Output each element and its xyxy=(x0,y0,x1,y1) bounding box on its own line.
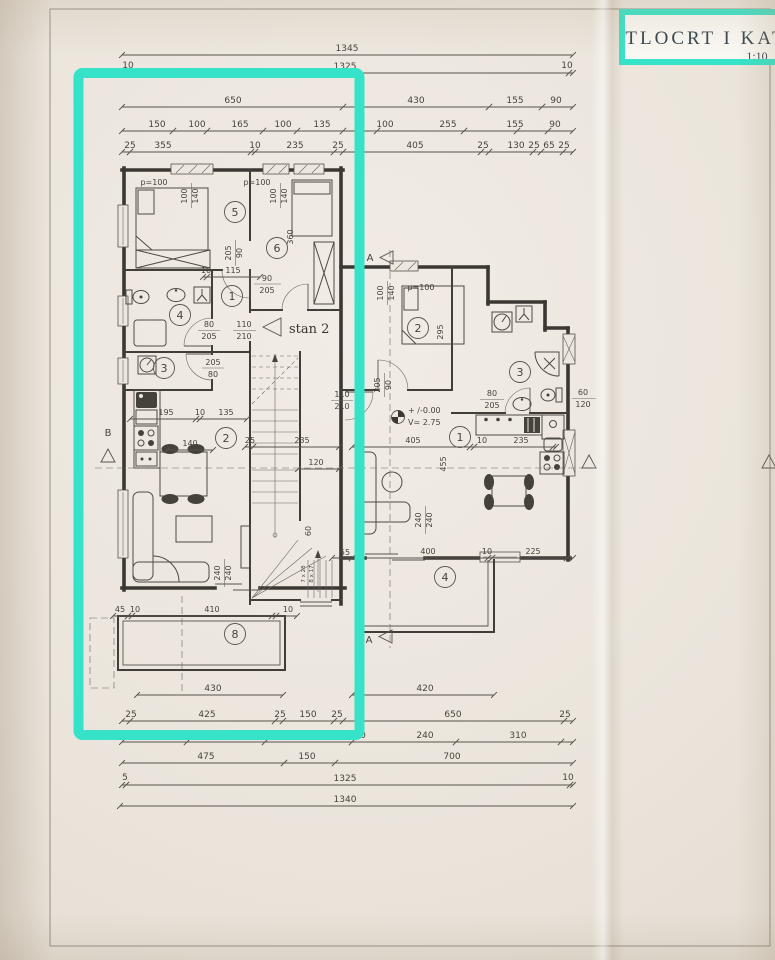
staircase: 7 x 28 8 x 17 xyxy=(252,354,332,598)
dim-label: 25 xyxy=(477,141,488,151)
dim-label: 1345 xyxy=(336,44,359,54)
washing-machine-icon xyxy=(492,312,512,332)
dim-label: 210 xyxy=(334,402,349,411)
dim-label: 165 xyxy=(231,120,248,130)
dim-label: 90 xyxy=(235,248,244,258)
room-label: 3 xyxy=(154,358,175,379)
dim-label: 210 xyxy=(236,332,251,341)
dim-label: 110 xyxy=(236,320,251,329)
room-label: 3 xyxy=(510,362,531,383)
dim-label: 25 xyxy=(558,141,569,151)
dim-label: 25 xyxy=(125,710,136,720)
dim-label: 150 xyxy=(299,710,316,720)
entry-door-icon xyxy=(263,318,281,336)
sofa-icon xyxy=(133,492,209,582)
dim-label: 45 xyxy=(115,605,125,614)
level-datum-label: + /-0.00 xyxy=(408,406,441,415)
door-arc-icon xyxy=(378,360,408,390)
dim-label: 240 xyxy=(414,512,423,527)
dim-label: p=100 xyxy=(407,283,434,292)
dim-label: 100 xyxy=(274,120,291,130)
toilet-icon xyxy=(126,290,149,304)
dim-label: 235 xyxy=(294,436,309,445)
window-icon xyxy=(263,164,289,174)
dim-label: 80 xyxy=(487,389,497,398)
room-number: 6 xyxy=(274,242,281,255)
window-icon xyxy=(294,164,324,174)
dining-table-icon xyxy=(484,474,534,510)
apartment-label: stan 2 xyxy=(289,322,329,337)
windows xyxy=(118,164,575,590)
dim-label: 140 xyxy=(280,188,289,203)
dim-label: 225 xyxy=(525,547,540,556)
room-number: 3 xyxy=(517,366,524,379)
dim-label: 140 xyxy=(387,285,396,300)
shower-tub-icon xyxy=(134,320,166,346)
stair-direction-arrow-icon xyxy=(315,550,321,558)
dim-label: 430 xyxy=(204,684,221,694)
dim-label: 5 xyxy=(122,773,128,783)
dim-label: 10 xyxy=(130,605,140,614)
dim-label: 25 xyxy=(528,141,539,151)
sink-icon xyxy=(167,289,185,302)
dim-label: 10 xyxy=(482,547,492,556)
vent-icon xyxy=(516,306,532,322)
dim-label: 400 xyxy=(420,547,435,556)
dim-label: 420 xyxy=(416,684,433,694)
dim-label: 60 xyxy=(304,526,313,536)
dim-label: 90 xyxy=(549,120,561,130)
tv-cabinet-icon xyxy=(241,526,250,568)
dim-label: 100 xyxy=(188,120,205,130)
dim-label: 65 xyxy=(543,141,554,151)
furniture-right-apartment xyxy=(356,286,564,534)
wardrobe-icon xyxy=(136,250,210,268)
dim-label: 405 xyxy=(405,436,420,445)
sliding-door-icon xyxy=(215,584,260,590)
dim-label: 310 xyxy=(509,731,526,741)
drawing-title: TLOCRT I KAT xyxy=(625,28,775,49)
room-label: 2 xyxy=(408,318,429,339)
dim-label: 90 xyxy=(550,96,562,106)
room-number: 3 xyxy=(161,362,168,375)
dim-label: 650 xyxy=(224,96,241,106)
section-marker-triangle-icon xyxy=(582,455,596,468)
dim-label: 120 xyxy=(308,458,323,467)
room-number: 1 xyxy=(457,431,464,444)
dim-label: 10 xyxy=(195,408,205,417)
dim-label: 130 xyxy=(507,141,524,151)
walls-right-apartment xyxy=(341,267,570,560)
window-icon xyxy=(390,261,418,271)
dim-label: 205 xyxy=(259,286,274,295)
bed-icon xyxy=(402,286,464,344)
room-number: 4 xyxy=(177,309,184,322)
dim-label: 10 xyxy=(477,436,487,445)
dim-label: 10 xyxy=(561,61,573,71)
dim-label: 25 xyxy=(331,710,342,720)
dim-label: 25 xyxy=(559,710,570,720)
dim-label: 135 xyxy=(313,120,330,130)
dim-label: 25 xyxy=(124,141,135,151)
room-number: 1 xyxy=(229,290,236,303)
dim-label: 100 xyxy=(376,285,385,300)
room-number: 8 xyxy=(232,628,239,641)
dim-label: 235 xyxy=(286,141,303,151)
floor-plan-photo: 1345 10 1325 10 650 430 155 90 150 100 1… xyxy=(0,0,775,960)
highlight-annotations: 1:10 TLOCRT I KAT xyxy=(79,12,775,735)
room-label: 4 xyxy=(435,567,456,588)
dim-label: 90 xyxy=(384,380,393,390)
dim-label: 455 xyxy=(439,456,448,471)
sliding-door-icon xyxy=(365,554,425,560)
dim-label: 155 xyxy=(506,96,523,106)
dim-label: 360 xyxy=(286,229,295,244)
dim-label: 140 xyxy=(191,188,200,203)
room-height-label: V= 2.75 xyxy=(408,418,441,427)
dim-label: 120 xyxy=(575,400,590,409)
dim-label: 425 xyxy=(198,710,215,720)
washing-machine-icon xyxy=(138,356,156,374)
door-arc-icon xyxy=(282,284,308,310)
dim-label: 150 xyxy=(298,752,315,762)
dim-label: 115 xyxy=(225,266,240,275)
dim-label: 100 xyxy=(180,188,189,203)
section-marker-b-left: B xyxy=(105,428,112,439)
dim-label: 475 xyxy=(197,752,214,762)
room-label: 5 xyxy=(225,202,246,223)
corner-shower-icon xyxy=(535,352,559,376)
terrace-right xyxy=(358,560,494,632)
walls-left-apartment xyxy=(122,168,345,604)
vent-icon xyxy=(194,287,210,303)
section-marker-a-bottom: A xyxy=(366,635,373,646)
furniture-left-apartment xyxy=(126,180,334,582)
dim-label: 195 xyxy=(158,408,173,417)
dim-label: 255 xyxy=(439,120,456,130)
title-block: 1:10 TLOCRT I KAT xyxy=(622,12,775,63)
room-number: 4 xyxy=(442,571,449,584)
terrace-left xyxy=(118,616,285,670)
coffee-table-icon xyxy=(176,516,212,542)
dim-label: 25 xyxy=(274,710,285,720)
wardrobe-icon xyxy=(314,242,334,304)
dim-label: 150 xyxy=(148,120,165,130)
dim-label: p=100 xyxy=(243,178,270,187)
dim-label: 90 xyxy=(262,274,272,283)
kitchen-counter-icon xyxy=(134,390,160,468)
dim-label: 10 xyxy=(201,266,211,275)
window-icon xyxy=(171,164,213,174)
stair-direction-arrow-icon xyxy=(272,354,278,362)
dim-label: 240 xyxy=(425,512,434,527)
dim-label: 205 xyxy=(205,358,220,367)
dim-label: 240 xyxy=(213,565,222,580)
dim-label: 60 xyxy=(578,388,588,397)
room-label: 8 xyxy=(225,624,246,645)
stair-note: 8 x 17 xyxy=(309,565,315,583)
stair-note: 7 x 28 xyxy=(301,565,307,583)
dim-label: 155 xyxy=(506,120,523,130)
dim-label: 430 xyxy=(407,96,424,106)
dim-label: 55 xyxy=(340,548,350,557)
dim-label: 405 xyxy=(406,141,423,151)
dim-label: 355 xyxy=(154,141,171,151)
sink-icon xyxy=(513,398,531,411)
dim-label: 140 xyxy=(182,439,197,448)
dim-label: 1340 xyxy=(334,795,357,805)
dim-label: 205 xyxy=(201,332,216,341)
section-marker-triangle-icon xyxy=(101,449,115,462)
terrace-dashed-outline xyxy=(90,618,114,688)
dining-table-icon xyxy=(160,444,207,504)
bed-icon xyxy=(292,180,332,236)
room-label: 4 xyxy=(170,305,191,326)
dim-label: 25 xyxy=(245,436,255,445)
dim-label: 10 xyxy=(283,605,293,614)
dim-label: 295 xyxy=(436,324,445,339)
dim-label: 80 xyxy=(208,370,218,379)
dim-label: 205 xyxy=(373,377,382,392)
dim-label: 25 xyxy=(332,141,343,151)
dim-label: 235 xyxy=(513,436,528,445)
room-label: 1 xyxy=(450,427,471,448)
dim-label: 650 xyxy=(444,710,461,720)
room-label: 6 xyxy=(267,238,288,259)
dim-label: 240 xyxy=(224,565,233,580)
dim-label: 700 xyxy=(443,752,460,762)
dim-label: 240 xyxy=(416,731,433,741)
room-number: 2 xyxy=(415,322,422,335)
dim-label: p=100 xyxy=(140,178,167,187)
level-marker-icon xyxy=(392,411,405,424)
room-number: 5 xyxy=(232,206,239,219)
dim-label: 100 xyxy=(269,188,278,203)
dim-label: 110 xyxy=(334,390,349,399)
dim-label: 135 xyxy=(218,408,233,417)
room-label: 2 xyxy=(216,428,237,449)
dim-label: 80 xyxy=(204,320,214,329)
section-marker-triangle-icon xyxy=(762,455,775,468)
dim-label: 205 xyxy=(484,401,499,410)
dim-label: 10 xyxy=(562,773,574,783)
toilet-icon xyxy=(541,388,562,402)
dim-label: 10 xyxy=(249,141,261,151)
dim-label: 205 xyxy=(224,245,233,260)
dim-label: 100 xyxy=(376,120,393,130)
dim-rows-top: 1345 10 1325 10 650 430 155 90 150 100 1… xyxy=(122,44,573,155)
dim-label: 410 xyxy=(204,605,219,614)
section-marker-a-top: A xyxy=(367,253,374,264)
room-number: 2 xyxy=(223,432,230,445)
dim-label: 1325 xyxy=(334,774,357,784)
